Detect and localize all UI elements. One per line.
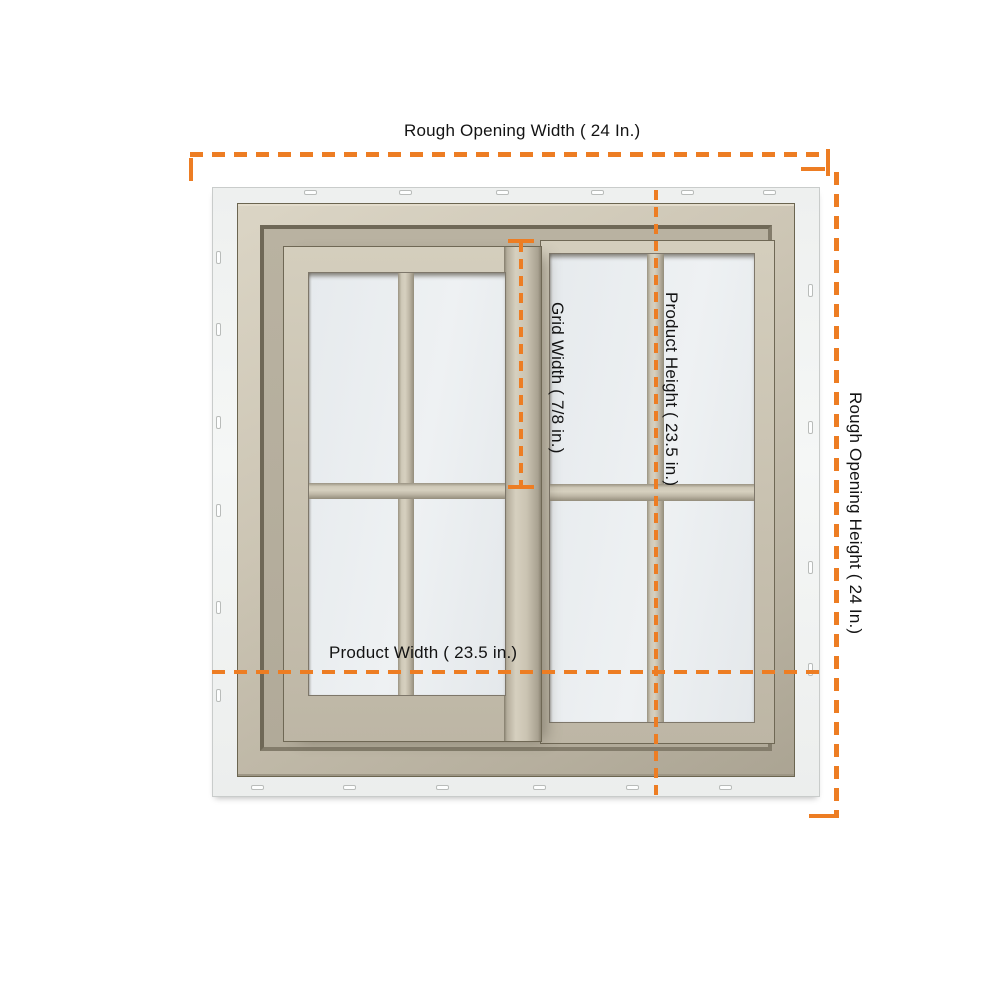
nail-slot [251, 785, 264, 790]
product-width-label: Product Width ( 23.5 in.) [329, 643, 517, 663]
nail-slot [216, 504, 221, 517]
nail-slot [399, 190, 412, 195]
grid-bar-horizontal [309, 483, 505, 499]
dimension-tick [809, 814, 834, 818]
nail-slot [216, 689, 221, 702]
nail-slot [681, 190, 694, 195]
nail-slot [343, 785, 356, 790]
nail-slot [216, 416, 221, 429]
grid-bar-horizontal [550, 484, 754, 501]
left-sash-glass [308, 272, 506, 696]
nail-slot [304, 190, 317, 195]
dimension-tick [801, 167, 825, 171]
left-sash [283, 246, 542, 742]
nail-slot [808, 421, 813, 434]
product-dimension-diagram: Rough Opening Width ( 24 In.) Rough Open… [0, 0, 1000, 1000]
right-sash-glass [549, 253, 755, 723]
product-height-label: Product Height ( 23.5 in.) [661, 292, 681, 486]
nail-slot [436, 785, 449, 790]
dimension-line [519, 242, 523, 488]
nail-slot [216, 323, 221, 336]
nail-slot [719, 785, 732, 790]
nail-slot [626, 785, 639, 790]
nail-slot [591, 190, 604, 195]
dimension-line [190, 152, 828, 157]
nail-slot [216, 601, 221, 614]
nail-slot [496, 190, 509, 195]
dimension-tick [508, 485, 534, 489]
nail-slot [808, 284, 813, 297]
nail-slot [808, 561, 813, 574]
dimension-line [654, 190, 658, 797]
nail-slot [533, 785, 546, 790]
rough-opening-width-label: Rough Opening Width ( 24 In.) [404, 121, 640, 141]
grid-width-label: Grid Width ( 7/8 in.) [547, 302, 567, 454]
dimension-tick [826, 149, 830, 176]
dimension-tick [508, 239, 534, 243]
nail-slot [216, 251, 221, 264]
dimension-line [212, 670, 820, 674]
nail-slot [763, 190, 776, 195]
rough-opening-height-label: Rough Opening Height ( 24 In.) [845, 392, 865, 634]
dimension-tick [189, 158, 193, 181]
dimension-line [834, 172, 839, 818]
